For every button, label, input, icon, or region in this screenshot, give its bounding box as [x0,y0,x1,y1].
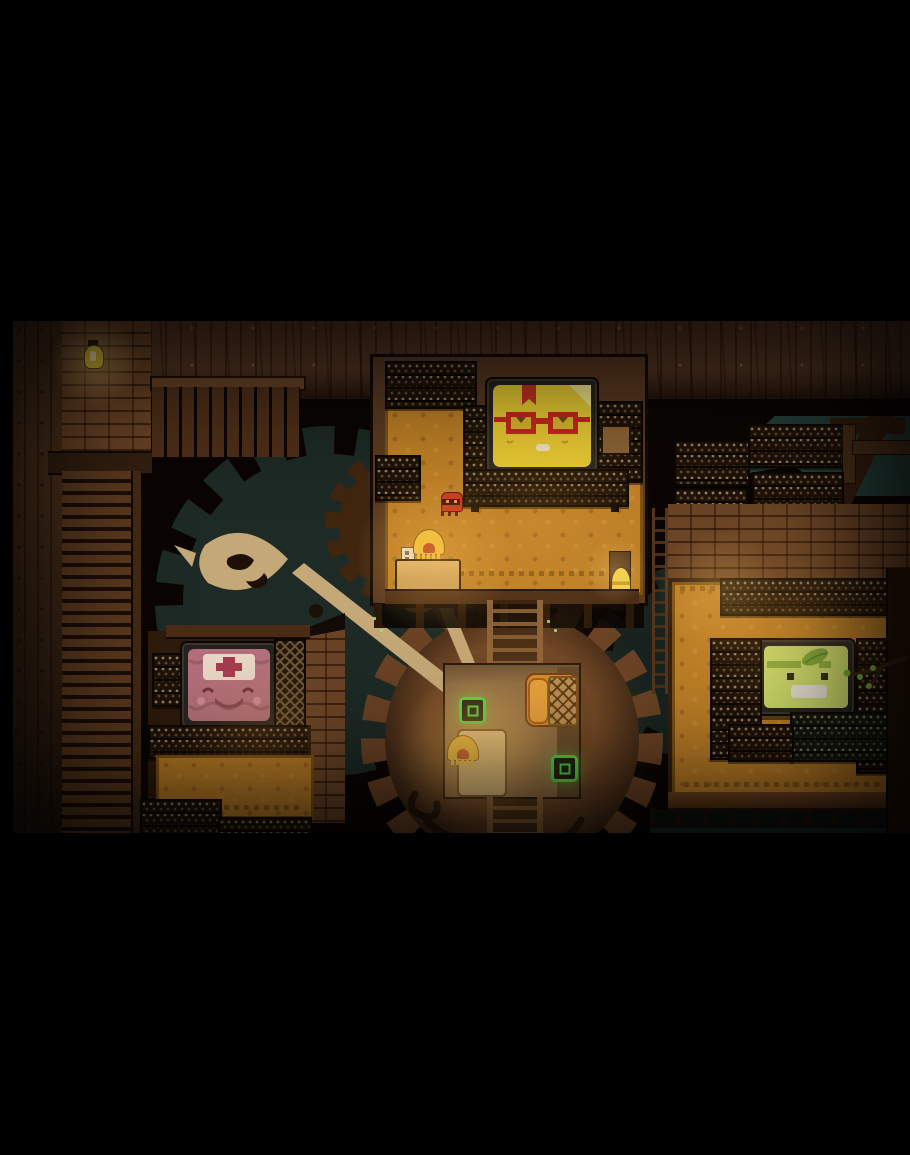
left-void [0,321,13,833]
portrait-leaf-face [763,645,849,709]
portrait-nurse-face [187,648,271,722]
red-bug[interactable] [439,489,463,517]
central-platform [443,663,581,799]
firefly-4 [554,629,557,632]
left-room-bottom-shelf-a [140,799,222,833]
green-pad-2[interactable] [551,755,578,782]
left-room-lattice-shelf [274,639,306,727]
bug-face-band [442,499,460,505]
bed[interactable] [525,673,579,727]
bed-pillow [528,678,549,724]
left-room-bottom-shelf-b [218,817,312,833]
left-room [140,621,345,833]
game-viewport [0,321,910,833]
firefly-2 [380,629,383,632]
carpet-trim-right-bottom [684,782,884,787]
firefly-3 [547,620,550,623]
left-room-top-beam [166,625,310,639]
ladder-below-platform[interactable] [487,797,543,833]
letterbox-top [0,0,910,321]
portrait-librarian-frame[interactable] [485,377,599,475]
hanging-shelf-d [752,472,844,508]
portrait-librarian-face [492,384,592,468]
bug-eye-left [446,500,449,503]
lantern-flame [90,351,96,361]
slatted-stairs[interactable] [62,471,132,833]
top-room-shelf-topleft [385,361,477,409]
left-rough-wall [13,321,63,833]
right-room-below-shelf [728,724,794,762]
left-room-small-shelf [152,653,182,707]
small-cabinet[interactable] [601,425,631,455]
top-room-shelf-small-left [375,455,421,501]
hanging-shelf-a [748,424,846,468]
top-room-shelf-row [463,469,629,507]
leafy-branch [840,646,910,706]
plate-dot-1 [405,551,409,555]
right-room-ladder[interactable] [652,508,668,694]
right-room [650,416,910,833]
green-pad-1[interactable] [459,697,486,724]
bed-blanket [548,676,578,726]
hanging-shelf-b [674,440,750,486]
shelf-leg-right [611,503,619,512]
bug-eye-right [454,500,457,503]
right-room-top-shelf-row [720,578,910,616]
shelf-leg-left [471,503,479,512]
left-room-shelf-row [148,725,310,759]
firefly-1 [373,617,376,620]
walkway-rail [650,808,910,828]
letterbox-bottom [0,833,910,1155]
top-room [370,354,648,606]
bug-legs [441,511,461,516]
shelf-beam [852,440,910,455]
plank-fence [152,387,300,457]
screenshot-stage [0,0,910,1155]
ladder-to-platform[interactable] [487,600,543,670]
right-room-brick-wall [668,504,910,582]
right-room-olive-shelf [790,712,894,762]
portrait-nurse-frame[interactable] [180,641,278,729]
left-brick-column [62,321,151,471]
